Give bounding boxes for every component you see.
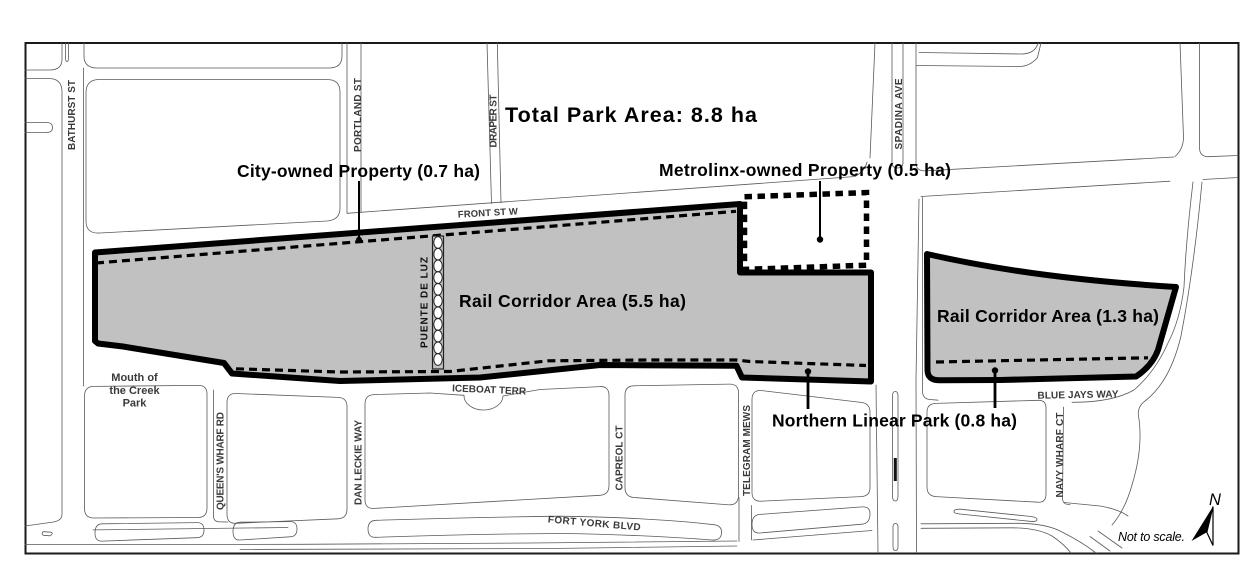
- svg-text:N: N: [1209, 491, 1221, 509]
- svg-text:Northern Linear Park (0.8 ha): Northern Linear Park (0.8 ha): [772, 411, 1017, 431]
- svg-text:SPADINA AVE: SPADINA AVE: [894, 78, 905, 149]
- svg-text:Not to scale.: Not to scale.: [1118, 530, 1185, 544]
- svg-text:PUENTE DE LUZ: PUENTE DE LUZ: [420, 257, 431, 348]
- svg-text:Metrolinx-owned Property (0.5: Metrolinx-owned Property (0.5 ha): [659, 160, 951, 180]
- svg-text:PORTLAND ST: PORTLAND ST: [353, 78, 364, 152]
- svg-text:NAVY WHARF CT: NAVY WHARF CT: [1055, 413, 1066, 498]
- svg-text:the Creek: the Creek: [109, 385, 160, 397]
- svg-text:BATHURST ST: BATHURST ST: [67, 80, 78, 150]
- svg-text:CAPREOL CT: CAPREOL CT: [615, 426, 626, 491]
- svg-text:DRAPER ST: DRAPER ST: [489, 95, 500, 148]
- svg-text:DAN LECKIE WAY: DAN LECKIE WAY: [354, 420, 365, 505]
- svg-text:Rail Corridor Area (5.5 ha): Rail Corridor Area (5.5 ha): [459, 291, 686, 311]
- svg-text:Mouth of: Mouth of: [111, 372, 158, 384]
- svg-text:TELEGRAM MEWS: TELEGRAM MEWS: [742, 405, 753, 496]
- svg-text:QUEEN'S WHARF RD: QUEEN'S WHARF RD: [216, 412, 227, 510]
- svg-text:Rail Corridor Area (1.3 ha): Rail Corridor Area (1.3 ha): [937, 306, 1159, 326]
- svg-text:Park: Park: [123, 398, 148, 410]
- svg-text:Total Park Area: 8.8 ha: Total Park Area: 8.8 ha: [505, 103, 758, 127]
- svg-text:BLUE JAYS WAY: BLUE JAYS WAY: [1037, 389, 1119, 401]
- svg-text:City-owned Property (0.7 ha): City-owned Property (0.7 ha): [237, 161, 480, 181]
